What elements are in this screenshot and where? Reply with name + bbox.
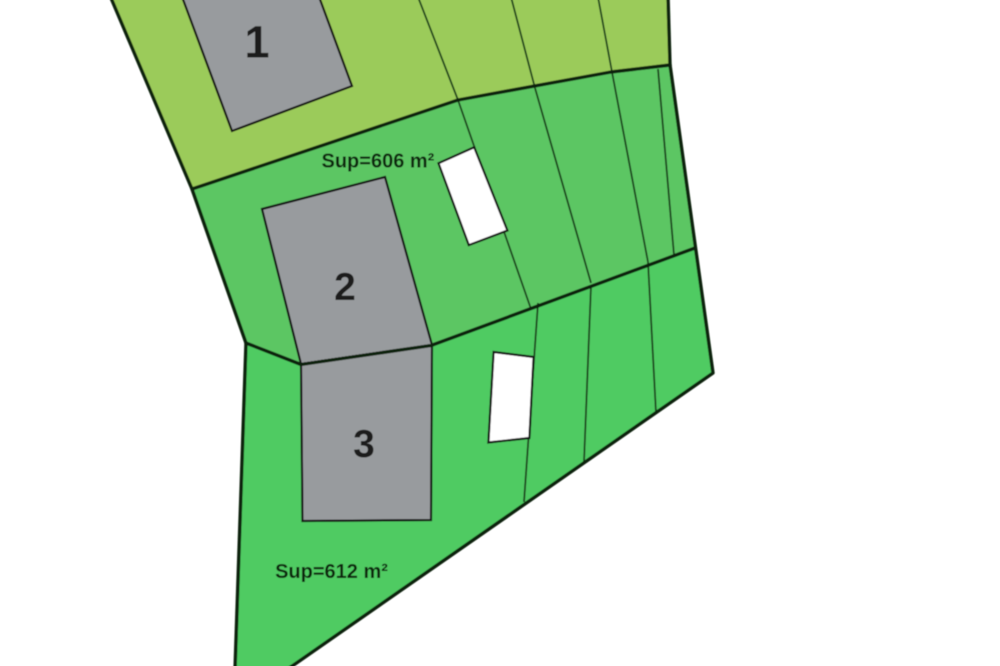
svg-text:2: 2 bbox=[334, 266, 356, 309]
svg-text:Sup=606 m²: Sup=606 m² bbox=[322, 151, 435, 173]
svg-text:Sup=612 m²: Sup=612 m² bbox=[275, 561, 388, 583]
svg-text:3: 3 bbox=[353, 423, 375, 466]
svg-text:1: 1 bbox=[244, 16, 269, 67]
